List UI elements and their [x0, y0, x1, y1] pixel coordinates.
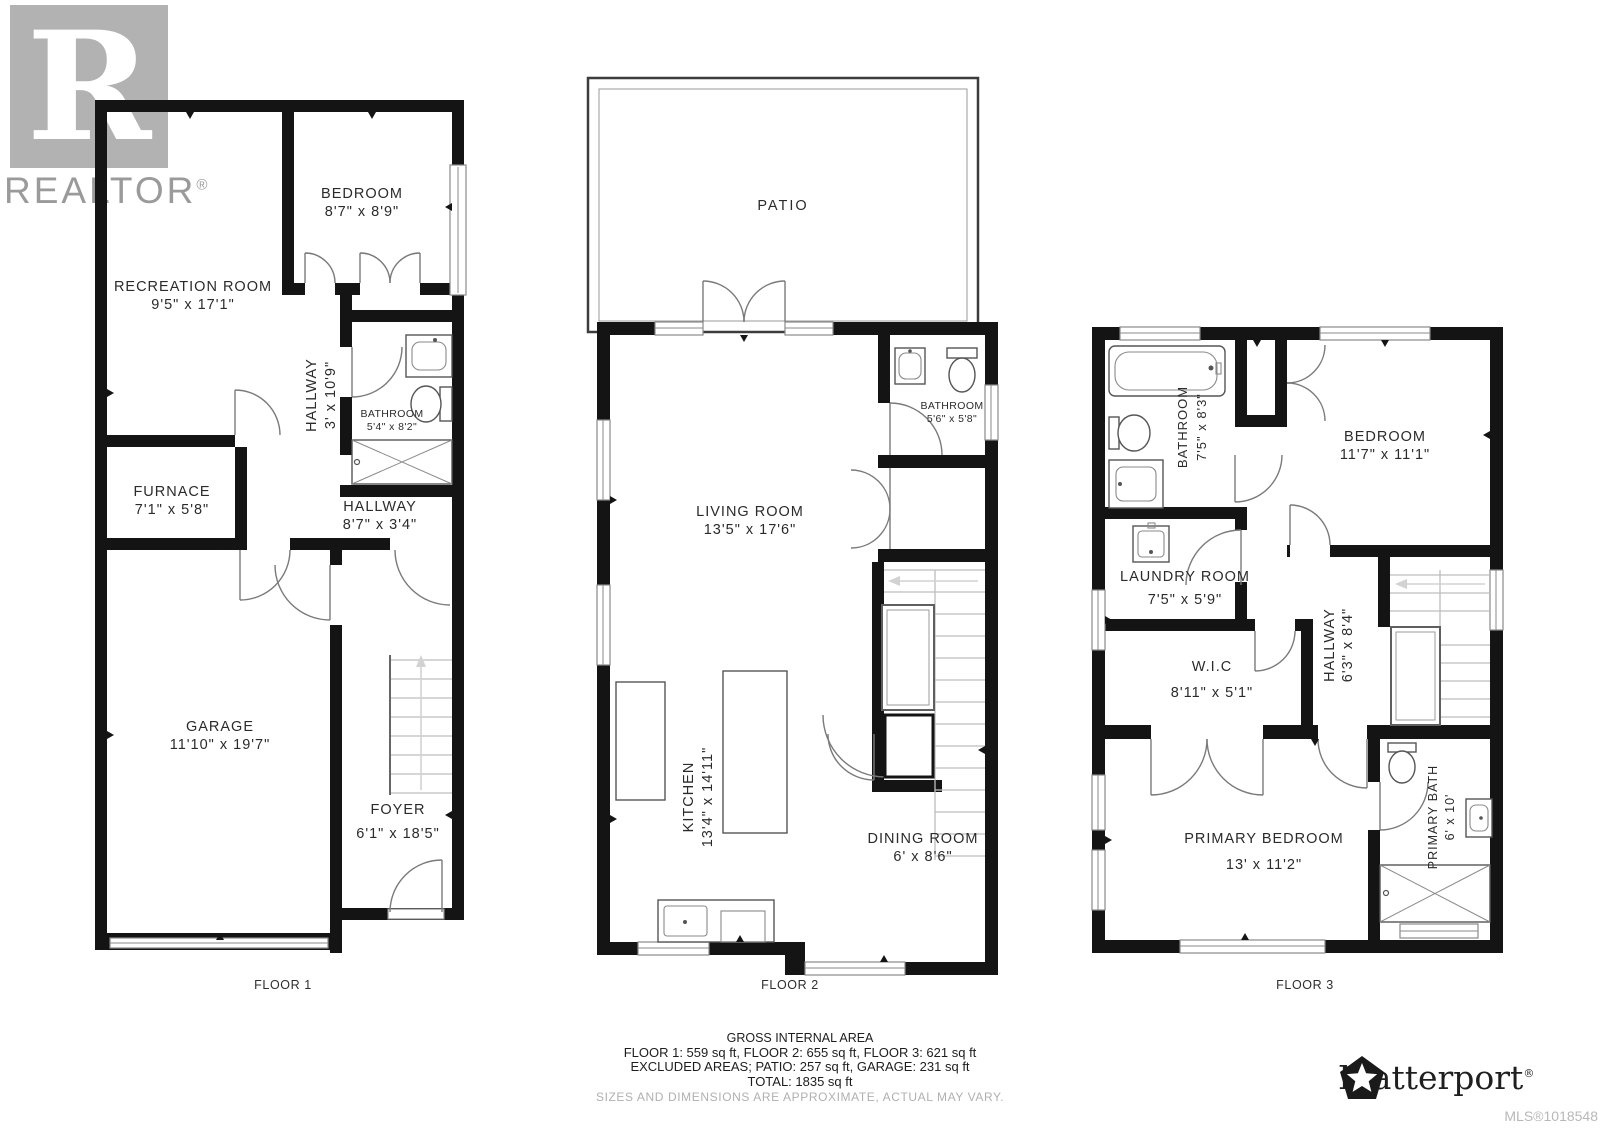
room-label-hallway-1: HALLWAY — [304, 358, 320, 432]
floor-2-caption: FLOOR 2 — [720, 978, 860, 992]
room-dims-hallway-2: 8'7" x 3'4" — [343, 517, 417, 533]
kitchen-island — [723, 671, 787, 833]
room-dims-bathroom: 5'4" x 8'2" — [367, 421, 417, 433]
room-dims-bathroom3: 7'5" x 8'3" — [1194, 393, 1209, 461]
floor-1-caption: FLOOR 1 — [213, 978, 353, 992]
room-label-recreation-room: RECREATION ROOM — [114, 279, 272, 295]
room-dims-bathroom2: 5'6" x 5'8" — [927, 413, 977, 425]
matterport-icon — [1338, 1055, 1386, 1101]
room-label-dining-room: DINING ROOM — [868, 831, 979, 847]
room-dims-hallway3: 6'3" x 8'4" — [1340, 608, 1356, 682]
room-dims-bedroom3: 11'7" x 11'1" — [1340, 447, 1430, 463]
floor2-stairs — [882, 570, 985, 860]
room-label-hallway3: HALLWAY — [1322, 608, 1338, 682]
room-dims-kitchen: 13'4" x 14'11" — [700, 747, 716, 848]
registered-icon: ® — [1523, 1067, 1534, 1080]
room-dims-wic: 8'11" x 5'1" — [1171, 685, 1253, 701]
room-label-garage: GARAGE — [186, 719, 254, 735]
floor-1-plan: RECREATION ROOM 9'5" x 17'1" BEDROOM 8'7… — [90, 95, 475, 975]
floor3-stairs — [1390, 570, 1490, 725]
room-label-bathroom: BATHROOM — [360, 408, 423, 420]
bathtub-icon — [1109, 346, 1225, 396]
floor-3-plan: BATHROOM 7'5" x 8'3" BEDROOM 11'7" x 11'… — [1085, 320, 1510, 965]
room-dims-recreation-room: 9'5" x 17'1" — [151, 297, 234, 313]
room-label-furnace: FURNACE — [133, 484, 210, 500]
kitchen-counter — [616, 682, 665, 800]
room-dims-furnace: 7'1" x 5'8" — [135, 502, 209, 518]
floor3-laundry-fixtures — [1133, 523, 1169, 562]
room-label-patio: PATIO — [757, 198, 808, 214]
room-dims-laundry: 7'5" x 5'9" — [1148, 592, 1222, 608]
floor1-stairs — [390, 655, 452, 795]
room-dims-garage: 11'10" x 19'7" — [170, 737, 271, 753]
room-label-primary-bedroom: PRIMARY BEDROOM — [1184, 831, 1344, 847]
room-label-foyer: FOYER — [371, 802, 426, 818]
room-dims-dining-room: 6' x 8'6" — [893, 849, 952, 865]
room-label-primary-bath: PRIMARY BATH — [1426, 765, 1440, 869]
toilet-icon — [947, 348, 977, 358]
toilet-icon — [440, 387, 452, 421]
mls-number: MLS®1018548 — [1380, 1108, 1598, 1124]
room-label-living-room: LIVING ROOM — [696, 504, 804, 520]
room-dims-living-room: 13'5" x 17'6" — [704, 522, 797, 538]
floor-2-plan: PATIO BATHROOM 5'6" x 5'8" LIVING ROOM 1… — [580, 70, 1000, 975]
floor-3-caption: FLOOR 3 — [1235, 978, 1375, 992]
under-stair-closet — [885, 715, 933, 777]
room-dims-primary-bath: 6' x 10' — [1443, 794, 1457, 841]
room-label-bathroom2: BATHROOM — [920, 400, 983, 412]
room-label-bedroom: BEDROOM — [321, 186, 403, 202]
floor2-bathroom-fixtures — [895, 348, 977, 392]
room-label-wic: W.I.C — [1192, 659, 1232, 675]
room-dims-hallway-1: 3' x 10'9" — [323, 361, 339, 429]
room-dims-bedroom: 8'7" x 8'9" — [325, 204, 399, 220]
room-label-kitchen: KITCHEN — [681, 762, 697, 833]
matterport-logo: Matterport® — [1338, 1058, 1534, 1097]
room-label-bathroom3: BATHROOM — [1175, 386, 1190, 468]
floorplan-sheet: R REALTOR® — [0, 0, 1600, 1130]
room-dims-foyer: 6'1" x 18'5" — [356, 826, 439, 842]
room-dims-primary-bedroom: 13' x 11'2" — [1226, 857, 1302, 873]
room-label-laundry: LAUNDRY ROOM — [1120, 569, 1250, 585]
room-label-hallway-2: HALLWAY — [343, 499, 417, 515]
room-label-bedroom3: BEDROOM — [1344, 429, 1426, 445]
summary-title: GROSS INTERNAL AREA — [0, 1031, 1600, 1046]
